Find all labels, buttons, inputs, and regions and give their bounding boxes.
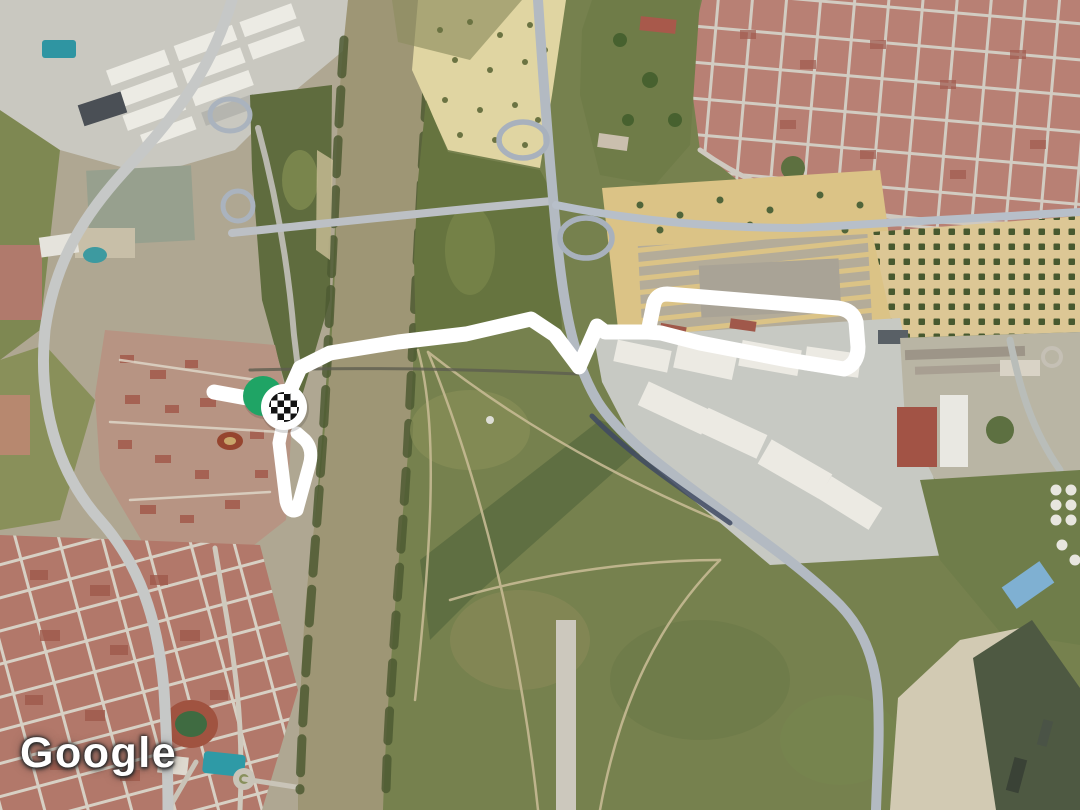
satellite-map (0, 0, 1080, 810)
tree-grid-residential (872, 216, 1080, 338)
map-viewport[interactable]: Google (0, 0, 1080, 810)
checkered-flag-icon (269, 392, 299, 422)
urban-mid-right (897, 332, 1080, 480)
google-logo: Google (20, 729, 177, 778)
